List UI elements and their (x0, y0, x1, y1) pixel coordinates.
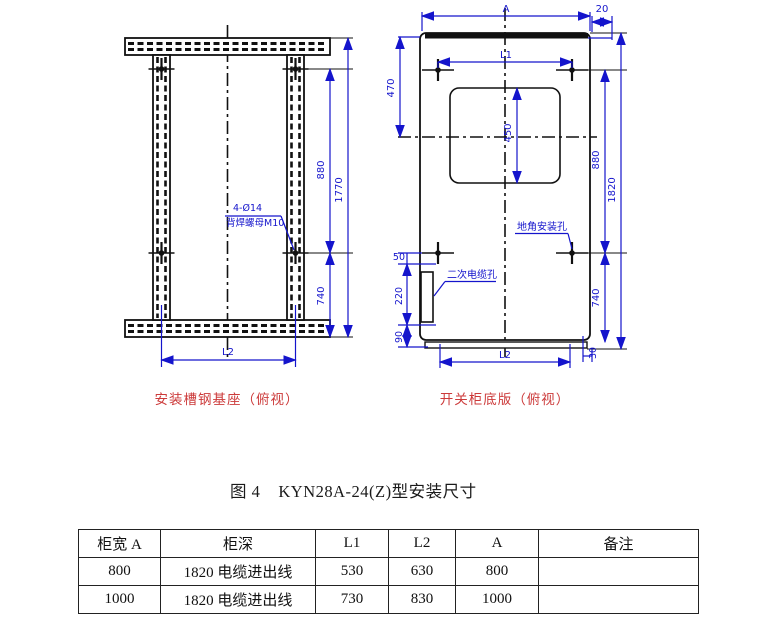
cell: 630 (389, 558, 456, 586)
right-channel-steel (287, 55, 304, 320)
base-bar (425, 342, 587, 348)
dim-50-label: 50 (393, 252, 405, 263)
bottom-plate-drawing: A 20 L1 450 470 50 220 90 880 740 1820 3… (390, 0, 645, 385)
cell: 800 (79, 558, 161, 586)
header-l1: L1 (316, 530, 389, 558)
base-frame-drawing: 880 740 1770 L2 4-Ø14 背焊螺母M10 (95, 20, 395, 380)
header-a: A (456, 530, 539, 558)
cell: 730 (316, 586, 389, 614)
dim-880-label: 880 (591, 150, 602, 169)
anchor-hole-label: 地角安装孔 (517, 220, 567, 233)
dim-a-label: A (503, 4, 510, 15)
cable-hole-callout: 二次电缆孔 (434, 268, 497, 296)
dim-450-label: 450 (503, 123, 514, 142)
cell (539, 558, 699, 586)
cell: 830 (389, 586, 456, 614)
left-drawing-caption: 安装槽钢基座（俯视） (142, 388, 312, 408)
table-row: 1000 1820 电缆进出线 730 830 1000 (79, 586, 699, 614)
cell: 1820 电缆进出线 (161, 586, 316, 614)
dim-1820-label: 1820 (607, 177, 618, 202)
table-row: 800 1820 电缆进出线 530 630 800 (79, 558, 699, 586)
dim-20-label: 20 (596, 4, 609, 15)
top-channel-steel (125, 38, 330, 55)
dim-1770-label: 1770 (334, 177, 345, 202)
cell: 800 (456, 558, 539, 586)
dim-880-label: 880 (316, 160, 327, 179)
left-channel-steel (153, 55, 170, 320)
anchor-hole-callout: 地角安装孔 (515, 220, 572, 249)
cell: 1000 (79, 586, 161, 614)
plate-top-edge (425, 33, 588, 39)
header-l2: L2 (389, 530, 456, 558)
header-cabinet-width: 柜宽 A (79, 530, 161, 558)
cable-hole-label: 二次电缆孔 (447, 268, 497, 281)
cell: 1000 (456, 586, 539, 614)
dim-30-label: 30 (588, 347, 599, 359)
dim-220-label: 220 (394, 287, 405, 305)
figure-number: 图 4 (230, 482, 260, 501)
cell (539, 586, 699, 614)
dim-470-label: 470 (386, 78, 397, 97)
dim-l2-label: L2 (222, 347, 234, 358)
dim-90-label: 90 (394, 331, 405, 343)
dimension-table: 柜宽 A 柜深 L1 L2 A 备注 800 1820 电缆进出线 530 63… (78, 529, 699, 614)
bottom-channel-steel (125, 320, 330, 337)
callout-line1: 4-Ø14 (233, 203, 262, 214)
callout-line2: 背焊螺母M10 (226, 217, 284, 229)
bolt-hole-marks (149, 58, 309, 264)
cell: 530 (316, 558, 389, 586)
dim-l2-label: L2 (499, 350, 511, 361)
table-header-row: 柜宽 A 柜深 L1 L2 A 备注 (79, 530, 699, 558)
header-cabinet-depth: 柜深 (161, 530, 316, 558)
dim-740-label: 740 (316, 286, 327, 305)
dim-l1-label: L1 (500, 50, 512, 61)
dim-740-label: 740 (591, 288, 602, 307)
figure-title: KYN28A-24(Z)型安装尺寸 (278, 482, 476, 501)
figure-caption: 图 4KYN28A-24(Z)型安装尺寸 (230, 478, 477, 502)
document-page: 880 740 1770 L2 4-Ø14 背焊螺母M10 (0, 0, 769, 626)
welded-nut-callout: 4-Ø14 背焊螺母M10 (225, 203, 294, 250)
right-drawing-caption: 开关柜底版（俯视） (420, 388, 590, 408)
cell: 1820 电缆进出线 (161, 558, 316, 586)
secondary-cable-hole (421, 272, 433, 322)
header-remarks: 备注 (539, 530, 699, 558)
